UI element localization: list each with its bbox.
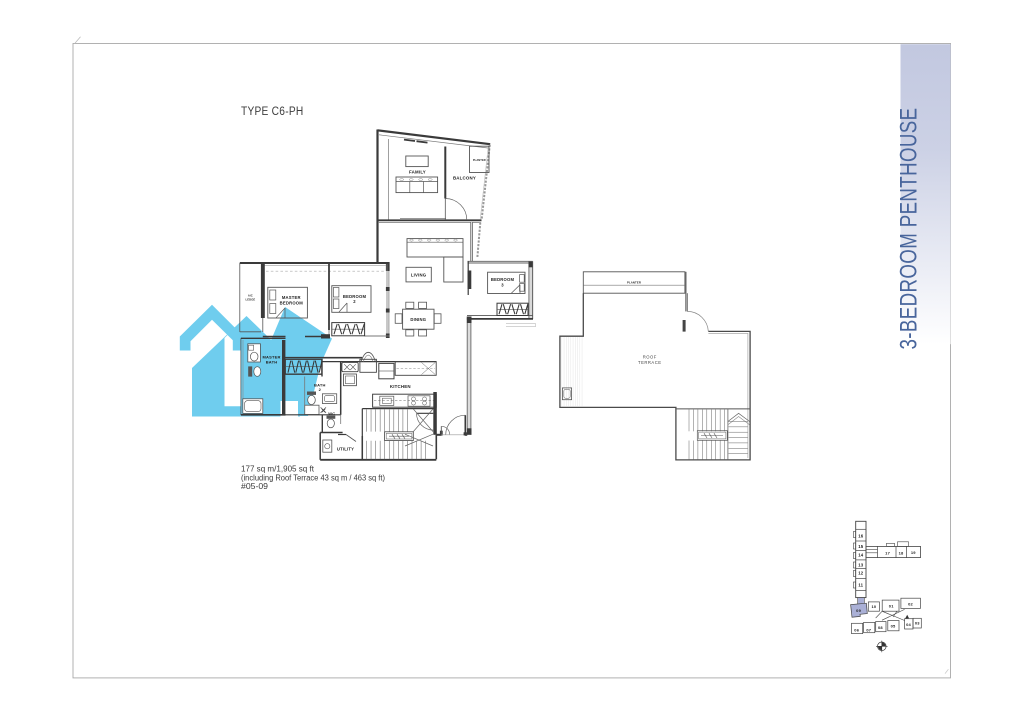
svg-text:ROOF: ROOF — [643, 355, 657, 360]
svg-text:A/C: A/C — [248, 294, 253, 298]
svg-text:08: 08 — [878, 625, 883, 630]
svg-text:BATH: BATH — [266, 360, 278, 365]
svg-text:02: 02 — [908, 601, 913, 606]
svg-text:UTILITY: UTILITY — [337, 446, 354, 451]
svg-text:BALCONY: BALCONY — [453, 176, 476, 181]
svg-text:15: 15 — [858, 544, 864, 549]
svg-text:DINING: DINING — [410, 317, 426, 322]
svg-text:11: 11 — [858, 583, 863, 588]
svg-text:LIVING: LIVING — [411, 272, 427, 277]
svg-text:18: 18 — [899, 550, 904, 555]
svg-text:17: 17 — [885, 551, 890, 556]
svg-text:12: 12 — [858, 570, 864, 575]
svg-text:BEDROOM: BEDROOM — [491, 277, 515, 282]
svg-text:KITCHEN: KITCHEN — [390, 384, 411, 389]
svg-text:3-BEDROOM PENTHOUSE: 3-BEDROOM PENTHOUSE — [896, 108, 923, 350]
svg-text:03: 03 — [915, 620, 920, 625]
svg-text:06: 06 — [854, 628, 859, 633]
svg-text:04: 04 — [906, 622, 911, 627]
svg-text:07: 07 — [866, 627, 871, 632]
svg-text:TYPE C6-PH: TYPE C6-PH — [241, 104, 304, 118]
svg-text:10: 10 — [871, 604, 876, 609]
svg-text:19: 19 — [911, 550, 916, 555]
svg-text:01: 01 — [889, 604, 894, 609]
svg-text:#05-09: #05-09 — [241, 482, 269, 491]
svg-text:16: 16 — [858, 533, 864, 538]
svg-text:177 sq m/1,905 sq ft: 177 sq m/1,905 sq ft — [241, 465, 315, 474]
svg-text:PLANTER: PLANTER — [473, 158, 486, 162]
svg-text:TERRACE: TERRACE — [638, 360, 662, 365]
svg-text:14: 14 — [858, 553, 864, 558]
svg-text:05: 05 — [891, 624, 896, 629]
svg-text:09: 09 — [856, 608, 861, 613]
svg-text:PLANTER: PLANTER — [627, 281, 641, 285]
svg-text:BEDROOM: BEDROOM — [280, 300, 304, 305]
svg-text:LEDGE: LEDGE — [246, 297, 256, 301]
svg-text:WC: WC — [328, 411, 335, 416]
svg-text:FAMILY: FAMILY — [409, 170, 426, 175]
svg-text:13: 13 — [858, 563, 864, 568]
